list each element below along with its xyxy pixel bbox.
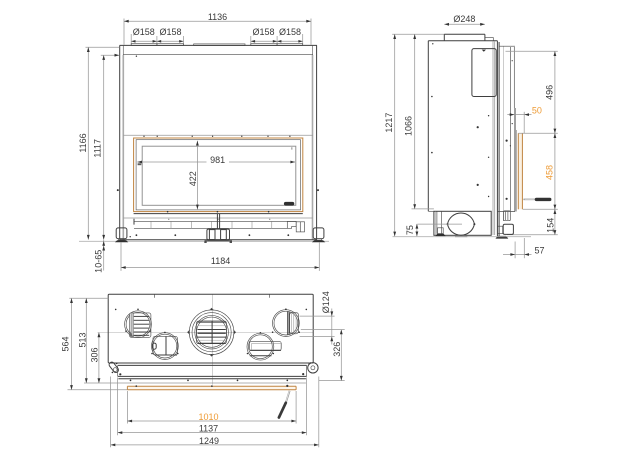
svg-text:Ø248: Ø248 — [453, 14, 475, 24]
svg-text:513: 513 — [78, 332, 88, 347]
svg-text:57: 57 — [534, 246, 544, 256]
svg-text:422: 422 — [188, 171, 198, 186]
svg-text:50: 50 — [532, 106, 542, 116]
svg-text:1010: 1010 — [198, 412, 218, 422]
svg-text:1184: 1184 — [211, 256, 230, 266]
svg-text:154: 154 — [546, 218, 556, 233]
svg-text:306: 306 — [90, 347, 100, 362]
svg-text:Ø158: Ø158 — [133, 27, 155, 37]
svg-text:1137: 1137 — [199, 424, 218, 434]
svg-text:Ø158: Ø158 — [252, 27, 274, 37]
svg-text:326: 326 — [332, 342, 342, 357]
svg-text:1136: 1136 — [208, 12, 227, 22]
svg-text:75: 75 — [405, 225, 415, 235]
svg-text:Ø158: Ø158 — [279, 27, 301, 37]
svg-text:1166: 1166 — [78, 133, 88, 152]
svg-text:1249: 1249 — [199, 436, 219, 446]
svg-text:10-65: 10-65 — [93, 250, 103, 273]
svg-text:Ø158: Ø158 — [159, 27, 181, 37]
svg-text:496: 496 — [544, 85, 554, 100]
svg-text:564: 564 — [60, 336, 70, 351]
svg-text:1217: 1217 — [384, 113, 394, 133]
svg-text:1117: 1117 — [92, 139, 102, 158]
svg-text:458: 458 — [545, 165, 555, 180]
svg-text:981: 981 — [210, 155, 225, 165]
svg-text:Ø124: Ø124 — [321, 291, 331, 313]
svg-text:1066: 1066 — [404, 116, 414, 136]
